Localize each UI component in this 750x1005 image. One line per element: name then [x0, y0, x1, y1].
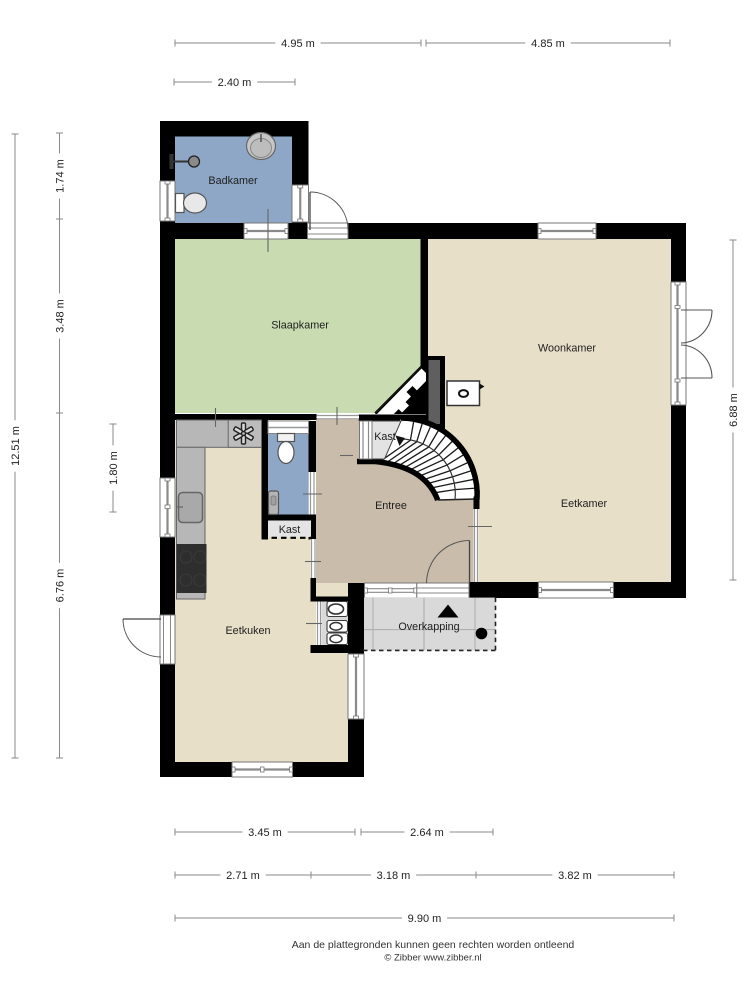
svg-text:2.71 m: 2.71 m: [226, 870, 260, 882]
svg-text:4.85 m: 4.85 m: [531, 38, 565, 50]
svg-text:Overkapping: Overkapping: [398, 621, 459, 633]
svg-text:9.90 m: 9.90 m: [408, 913, 442, 925]
svg-text:6.76 m: 6.76 m: [55, 569, 67, 603]
svg-text:Kast: Kast: [279, 524, 301, 536]
svg-text:12.51 m: 12.51 m: [10, 426, 22, 466]
svg-text:3.45 m: 3.45 m: [248, 827, 282, 839]
svg-text:Entree: Entree: [375, 500, 407, 512]
svg-text:Woonkamer: Woonkamer: [538, 343, 596, 355]
svg-text:6.88 m: 6.88 m: [728, 393, 740, 427]
svg-text:2.64 m: 2.64 m: [410, 827, 444, 839]
svg-text:1.74 m: 1.74 m: [55, 159, 67, 193]
svg-text:Slaapkamer: Slaapkamer: [271, 320, 329, 332]
svg-text:3.48 m: 3.48 m: [55, 299, 67, 333]
svg-text:Badkamer: Badkamer: [208, 175, 258, 187]
svg-text:Aan de plattegronden kunnen ge: Aan de plattegronden kunnen geen rechten…: [292, 939, 575, 951]
svg-text:4.95 m: 4.95 m: [281, 38, 315, 50]
svg-text:Eetkuken: Eetkuken: [225, 625, 270, 637]
svg-text:1.80 m: 1.80 m: [108, 451, 120, 485]
svg-text:Eetkamer: Eetkamer: [561, 498, 608, 510]
svg-text:© Zibber www.zibber.nl: © Zibber www.zibber.nl: [384, 953, 481, 964]
svg-text:3.18 m: 3.18 m: [377, 870, 411, 882]
svg-text:2.40 m: 2.40 m: [218, 77, 252, 89]
svg-text:Kast: Kast: [374, 431, 396, 443]
svg-text:3.82 m: 3.82 m: [558, 870, 592, 882]
